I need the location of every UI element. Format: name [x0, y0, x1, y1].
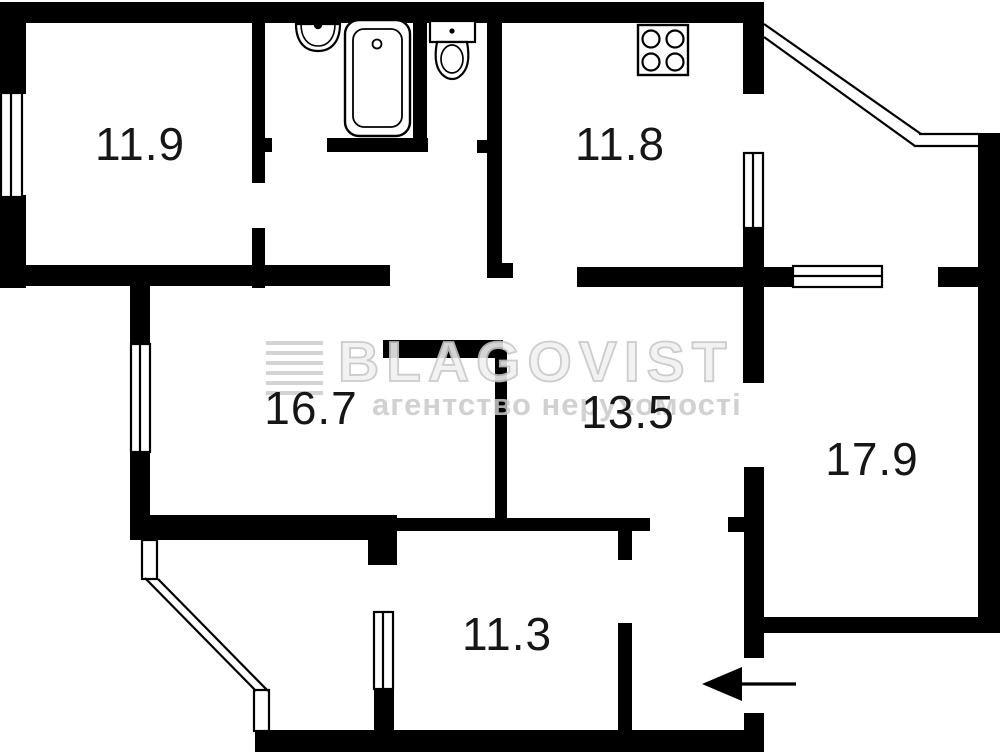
wall-balcony-left-top: [130, 515, 368, 540]
wall-band-kitchen-bottom: [577, 267, 764, 287]
wall-kitchen-right-upper: [743, 2, 764, 94]
bay-left-diagonal-inner: [158, 579, 268, 691]
room-label-16-7: 16.7: [264, 381, 358, 435]
sink-icon: [296, 21, 340, 51]
window-bay-left-upper: [142, 540, 157, 579]
wall-room179-top-left: [764, 267, 794, 287]
sink-tap: [314, 21, 322, 29]
wall-room113-left-lower: [374, 688, 394, 730]
stove-icon: [638, 25, 688, 75]
bathtub-outer: [345, 20, 410, 136]
room-label-11-8: 11.8: [575, 117, 665, 171]
wall-135-bottom: [383, 518, 650, 531]
floor-plan: BLAGOVIST агентство нерухомості 11.9 11.…: [0, 0, 1000, 752]
wall-room113-right-upper: [618, 518, 632, 560]
wall-living-135-divider: [495, 350, 507, 518]
wall-bath-toilet-divider: [413, 23, 427, 141]
wall-living-top-corner: [383, 340, 503, 358]
bay-glazing: [145, 24, 979, 691]
wall-stub-kitchen-door-left: [487, 263, 513, 278]
door-jamb-bathroom: [252, 138, 272, 152]
room-label-17-9: 17.9: [825, 432, 919, 486]
wall-band-left: [0, 265, 390, 286]
wall-right-outer: [978, 133, 1000, 633]
room-label-13-5: 13.5: [581, 385, 675, 439]
window-bay-left-lower: [254, 690, 269, 731]
entrance-arrow-icon: [702, 667, 796, 701]
entrance-arrow-head: [702, 667, 742, 701]
wall-bathroom-bottom: [327, 138, 428, 152]
wall-stub-corridor-right: [728, 517, 744, 532]
wall-toilet-kitchen-divider: [487, 23, 502, 266]
toilet-button: [449, 28, 454, 33]
wall-room113-right-lower: [618, 623, 632, 730]
room-label-11-9: 11.9: [95, 117, 185, 171]
bay-right-diagonal-inner: [764, 37, 915, 146]
bay-right-diagonal-outer: [764, 24, 921, 134]
wall-kitchen-right-lower: [743, 228, 764, 383]
wall-living-left-upper: [130, 278, 150, 345]
wall-room179-bottom: [744, 617, 980, 633]
bay-left-diagonal-outer: [145, 578, 256, 691]
wall-bottom: [255, 730, 764, 752]
wall-left-upper: [0, 2, 26, 94]
room-label-11-3: 11.3: [462, 607, 552, 661]
toilet-icon: [430, 21, 475, 79]
bathtub-icon: [345, 20, 410, 136]
wall-room119-right-upper: [252, 23, 265, 183]
door-jamb-toilet: [477, 140, 488, 153]
